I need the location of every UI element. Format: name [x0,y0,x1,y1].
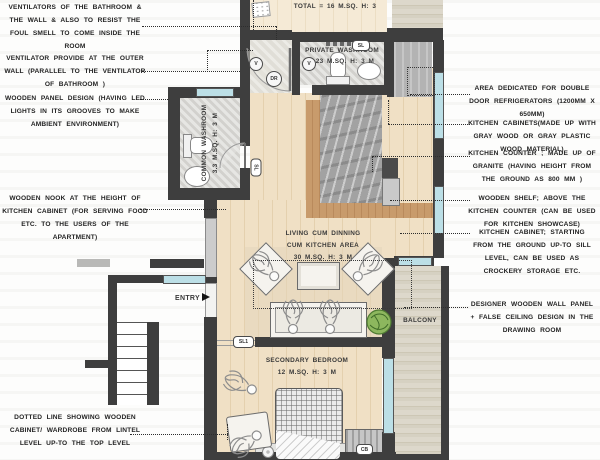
connector-left-1-drop [276,26,277,40]
private-washroom-name: PRIVATE WASHROOM [300,45,384,56]
common-washroom-label: COMMON WASHROOM 3.3 M.SQ. H: 3 M [199,98,221,188]
living-layout-dashed-outline [253,260,412,309]
living-line-2: CUM KITCHEN AREA [263,240,383,252]
skylight-badge-side: SL [251,159,262,177]
ventilator-badge-corridor: V [249,57,263,71]
stair-top-window [163,275,206,284]
connector-left-1 [142,26,276,27]
toilet-tank [326,76,350,85]
connector-right-6 [404,307,468,308]
bedroom-label: SECONDARY BEDROOM 12 M.SQ. H: 3 M [247,355,367,379]
annotation-dotted-wardrobe: DOTTED LINE SHOWING WOODEN CABINET/ WARD… [0,411,150,450]
wall-left-c [204,317,217,460]
skylight-badge-top: SL [352,40,370,51]
kitchen-window-1 [434,72,444,139]
annotation-designer-panel: DESIGNER WOODEN WALL PANEL + FALSE CEILI… [468,298,596,337]
living-line-3: 30 M.SQ. H: 3 M [263,252,383,264]
kitchen-window-2 [434,186,444,234]
living-line-1: LIVING CUM DINNING [263,228,383,240]
wall-corridor-top [250,30,292,40]
refrigerator-dashed-area [407,67,435,96]
switch-panel [251,1,270,18]
door-badge: DR [266,71,282,87]
connector-right-2-v [388,100,389,124]
annotation-ventilators: VENTILATORS OF THE BATHROOM & THE WALL &… [0,1,150,53]
wall-common-washroom-bottom [168,188,250,200]
kitchen-counter-granite [320,95,382,203]
bedroom-window [383,358,394,434]
entry-door-leaf [205,218,217,279]
wall-private-washroom-bottom-b [312,85,392,95]
kitchen-hob [382,158,398,178]
wall-balcony-bottom [394,454,449,460]
stair-wall-right [147,322,159,405]
bedroom-name: SECONDARY BEDROOM [247,355,367,367]
entry-arrow-icon [202,293,210,301]
common-washroom-name: COMMON WASHROOM [199,98,210,188]
connector-right-1 [410,94,470,95]
kitchen-counter-wood-edge-bottom [306,203,433,218]
wall-private-washroom-top [292,32,392,42]
staircase-steps [117,322,147,405]
connector-right-3-v [372,156,373,172]
sofa-seat-line [275,307,362,333]
annotation-wooden-panel: WOODEN PANEL DESIGN (HAVING LED LIGHTS I… [0,92,150,131]
wall-lobby-light [77,259,110,267]
connector-left-2 [142,71,240,72]
common-washroom-size: 3.3 M.SQ. H: 3 M [210,98,221,188]
connector-right-2 [388,124,470,125]
wall-common-washroom-right-lower [240,168,250,188]
wardrobe-dotted-corridor-v [207,50,208,72]
connector-right-3 [372,156,470,157]
kitchen-counter-wood-edge-left [306,100,320,218]
left-wall-window [205,283,217,319]
wall-kitchen-left-of-cabinets [387,42,394,97]
connector-right-4 [390,200,470,201]
annotation-kitchen-counter: KITCHEN COUNTER ; MADE UP OF GRANITE (HA… [468,147,596,186]
annotation-kitchen-cabinet-sill: KITCHEN CABINET; STARTING FROM THE GROUN… [468,226,596,278]
wall-bedroom-top [255,337,382,347]
top-room-total-label: TOTAL = 16 M.SQ. H: 3 [280,1,390,12]
stair-wall-top [108,275,163,283]
wardrobe-dotted-top-room [253,0,254,30]
balcony-top-floor [392,0,443,28]
wall-balcony-outer [441,266,449,456]
connector-left-4 [140,209,226,210]
wardrobe-dotted-corridor [207,50,253,51]
bedside-table [226,411,273,452]
stair-wall-left [108,275,117,405]
cabinet-badge: CB [356,444,373,455]
connector-left-5-tick [227,424,228,440]
annotation-ventilator-outer-wall: VENTILATOR PROVIDE AT THE OUTER WALL (PA… [0,52,150,91]
living-area-label: LIVING CUM DINNING CUM KITCHEN AREA 30 M… [263,228,383,264]
common-washroom-window [196,88,234,97]
wall-common-washroom-right-upper [240,98,250,146]
entry-label: ENTRY [166,293,200,304]
annotation-refrigerator: AREA DEDICATED FOR DOUBLE DOOR REFRIGERA… [468,82,596,121]
wall-private-washroom-bottom-a [292,85,300,95]
balcony-label: BALCONY [400,315,440,326]
stair-wall-stub [85,360,108,368]
connector-right-5 [400,233,470,234]
sliding-door-badge: SL1 [233,336,254,348]
wall-top-room-left [240,0,250,98]
wall-common-washroom-left [168,98,180,200]
floor-plan-canvas: V DR V SL SL SL1 CB TOTAL = 16 M.SQ. H: … [0,0,600,460]
wall-entry-porch [150,259,204,268]
ventilator-badge-private: V [302,57,316,71]
bedroom-size: 12 M.SQ. H: 3 M [247,367,367,379]
annotation-wooden-nook: WOODEN NOOK AT THE HEIGHT OF KITCHEN CAB… [0,192,150,244]
kitchen-cabinet-block [382,178,400,206]
